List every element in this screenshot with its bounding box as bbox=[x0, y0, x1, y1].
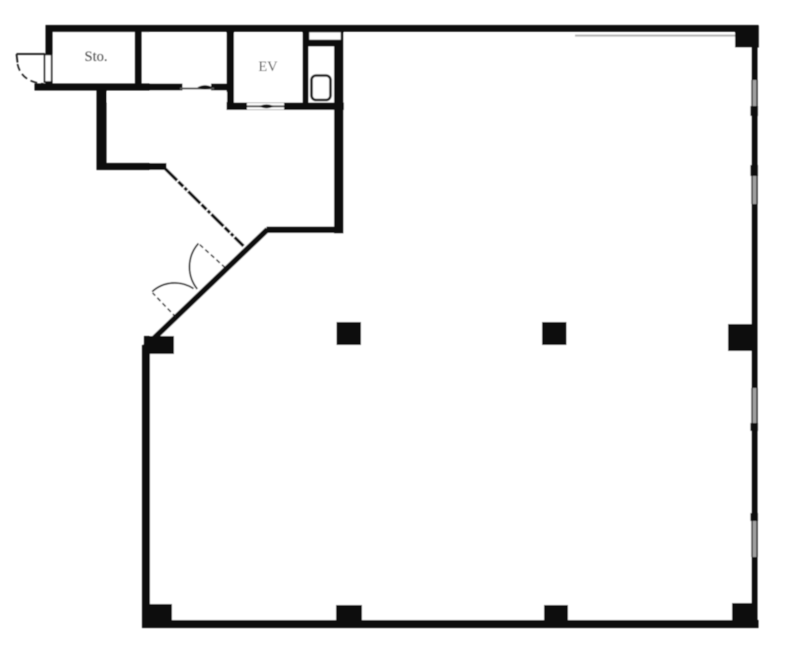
svg-text:Sto.: Sto. bbox=[85, 49, 108, 65]
svg-text:EV: EV bbox=[258, 59, 278, 75]
